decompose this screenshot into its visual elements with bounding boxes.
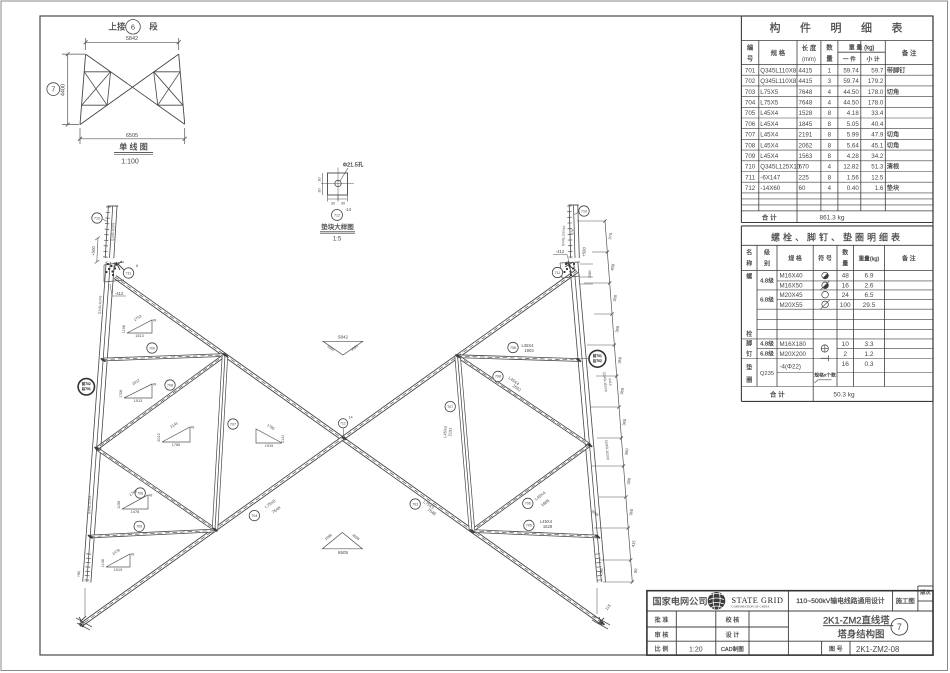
- svg-text:710: 710: [94, 216, 100, 220]
- svg-text:360: 360: [617, 356, 623, 364]
- svg-text:-14X60: -14X60: [760, 185, 781, 192]
- svg-text:710: 710: [745, 164, 756, 171]
- svg-text:706: 706: [745, 121, 756, 128]
- svg-text:备 注: 备 注: [902, 255, 916, 263]
- svg-text:设 计: 设 计: [726, 631, 740, 639]
- svg-text:59.74: 59.74: [843, 67, 859, 74]
- svg-text:178.0: 178.0: [868, 100, 884, 107]
- svg-text:后701: 后701: [82, 386, 91, 391]
- svg-text:2141: 2141: [281, 435, 285, 443]
- svg-text:塔身结构图: 塔身结构图: [838, 628, 885, 639]
- svg-text:6.9: 6.9: [864, 273, 873, 280]
- svg-text:Q345L110X8: Q345L110X8: [760, 67, 797, 74]
- svg-text:国家电网公司: 国家电网公司: [652, 596, 707, 607]
- svg-text:2.6: 2.6: [864, 283, 873, 290]
- svg-text:2062: 2062: [799, 142, 813, 149]
- svg-text:709: 709: [745, 153, 756, 160]
- svg-text:+500: +500: [90, 245, 96, 255]
- svg-text:30: 30: [341, 202, 345, 206]
- svg-text:704: 704: [251, 514, 257, 518]
- svg-text:带脚钉: 带脚钉: [887, 66, 906, 74]
- svg-text:2191: 2191: [799, 132, 813, 139]
- svg-text:1:5: 1:5: [333, 237, 342, 243]
- svg-text:4: 4: [828, 89, 832, 96]
- svg-text:12.82: 12.82: [843, 164, 859, 171]
- svg-text:360: 360: [612, 294, 618, 302]
- svg-text:2: 2: [843, 351, 847, 358]
- svg-text:48: 48: [842, 273, 850, 280]
- svg-text:钉: 钉: [746, 350, 752, 358]
- svg-text:比 例: 比 例: [655, 645, 669, 653]
- svg-text:49: 49: [153, 383, 157, 387]
- svg-text:50.3 kg: 50.3 kg: [833, 392, 855, 399]
- svg-text:数: 数: [826, 43, 833, 52]
- svg-text:7648: 7648: [271, 505, 282, 515]
- svg-text:712: 712: [334, 213, 340, 217]
- svg-text:1528: 1528: [799, 110, 813, 117]
- svg-text:5.05: 5.05: [847, 121, 860, 128]
- svg-text:Q345L110X8: Q345L110X8: [98, 295, 103, 314]
- svg-text:前702: 前702: [82, 381, 91, 386]
- svg-text:-500: -500: [599, 568, 604, 576]
- svg-text:701: 701: [745, 67, 756, 74]
- svg-text:33.4: 33.4: [871, 110, 884, 117]
- svg-text:1706: 1706: [119, 390, 123, 398]
- svg-text:M16X40: M16X40: [780, 273, 804, 280]
- svg-text:构件明细表: 构件明细表: [770, 21, 923, 35]
- svg-text:重量(kg): 重量(kg): [859, 255, 880, 263]
- svg-text:L75X5: L75X5: [760, 100, 778, 107]
- svg-text:2K1-ZM2直线塔: 2K1-ZM2直线塔: [823, 614, 890, 625]
- svg-text:审 核: 审 核: [655, 631, 669, 639]
- svg-text:施工图: 施工图: [896, 596, 915, 605]
- svg-text:7: 7: [51, 87, 55, 94]
- svg-text:390: 390: [626, 477, 632, 485]
- svg-text:60: 60: [799, 185, 806, 192]
- svg-text:1.56: 1.56: [847, 174, 860, 181]
- svg-text:45.1: 45.1: [871, 142, 884, 149]
- svg-text:CORPORATION OF CHINA: CORPORATION OF CHINA: [732, 605, 771, 609]
- svg-text:后702: 后702: [593, 358, 602, 363]
- svg-text:44.50: 44.50: [843, 100, 859, 107]
- svg-text:703: 703: [745, 89, 756, 96]
- svg-text:L45X4: L45X4: [760, 142, 778, 149]
- svg-text:47.9: 47.9: [871, 132, 884, 139]
- svg-text:702: 702: [745, 78, 756, 85]
- svg-text:长 度: 长 度: [802, 43, 817, 52]
- svg-text:螺: 螺: [746, 273, 752, 281]
- svg-text:Q345L125X10: Q345L125X10: [561, 225, 566, 246]
- svg-text:3: 3: [828, 78, 832, 85]
- svg-text:名: 名: [746, 249, 752, 257]
- svg-text:708: 708: [745, 142, 756, 149]
- svg-text:59.74: 59.74: [843, 78, 859, 85]
- svg-text:规 格: 规 格: [788, 255, 802, 263]
- svg-text:1:100: 1:100: [121, 159, 139, 166]
- svg-text:8: 8: [828, 142, 832, 149]
- svg-text:1106: 1106: [101, 559, 105, 567]
- svg-text:1998: 1998: [324, 533, 333, 541]
- svg-text:5.64: 5.64: [847, 142, 860, 149]
- svg-text:30: 30: [318, 188, 322, 192]
- svg-text:4: 4: [828, 164, 832, 171]
- svg-text:清根: 清根: [887, 163, 899, 171]
- svg-text:4400: 4400: [61, 84, 67, 96]
- svg-text:8: 8: [828, 174, 832, 181]
- svg-text:1513: 1513: [134, 399, 142, 403]
- svg-text:L45X4: L45X4: [760, 132, 778, 139]
- svg-text:Q345L110X8: Q345L110X8: [604, 440, 610, 460]
- svg-text:合 计: 合 计: [770, 390, 785, 399]
- svg-text:400: 400: [609, 263, 615, 271]
- svg-text:1919: 1919: [265, 444, 273, 448]
- svg-text:备 注: 备 注: [902, 48, 917, 57]
- svg-text:30: 30: [331, 202, 335, 206]
- svg-text:2062: 2062: [512, 383, 523, 393]
- svg-text:712: 712: [340, 422, 346, 426]
- svg-text:L75X5: L75X5: [760, 89, 778, 96]
- svg-text:8: 8: [828, 153, 832, 160]
- svg-text:4: 4: [828, 185, 832, 192]
- svg-text:59.7: 59.7: [871, 67, 884, 74]
- svg-text:5842: 5842: [338, 335, 349, 340]
- svg-text:29.5: 29.5: [863, 302, 876, 309]
- svg-text:上接: 上接: [108, 22, 126, 32]
- svg-text:100: 100: [840, 302, 851, 309]
- svg-text:单 线 图: 单 线 图: [119, 142, 147, 152]
- svg-text:4415: 4415: [608, 378, 613, 386]
- svg-text:708: 708: [495, 375, 501, 379]
- svg-text:切角: 切角: [887, 88, 899, 96]
- svg-text:L45X4: L45X4: [760, 121, 778, 128]
- svg-text:8: 8: [828, 121, 832, 128]
- svg-text:14: 14: [348, 416, 352, 420]
- svg-text:号: 号: [747, 55, 753, 63]
- svg-text:360: 360: [619, 387, 625, 395]
- svg-text:861.3 kg: 861.3 kg: [820, 214, 845, 221]
- svg-text:2012: 2012: [131, 378, 140, 386]
- svg-text:6505: 6505: [126, 133, 138, 139]
- svg-text:1513: 1513: [135, 334, 143, 338]
- svg-text:706: 706: [510, 346, 516, 350]
- svg-text:5842: 5842: [126, 36, 138, 42]
- svg-text:1478: 1478: [131, 510, 139, 514]
- svg-text:切角: 切角: [887, 131, 899, 139]
- svg-text:7648: 7648: [799, 100, 813, 107]
- svg-text:1196: 1196: [122, 325, 126, 333]
- svg-text:Φ21.5孔: Φ21.5孔: [343, 161, 364, 169]
- svg-text:M20X45: M20X45: [780, 292, 804, 299]
- svg-text:校 核: 校 核: [726, 616, 740, 624]
- svg-text:垫块大样图: 垫块大样图: [321, 222, 354, 231]
- svg-text:Q345L110X8: Q345L110X8: [760, 78, 797, 85]
- svg-text:Q235: Q235: [760, 371, 774, 377]
- svg-text:3580: 3580: [588, 270, 592, 278]
- svg-text:3.3: 3.3: [864, 341, 873, 348]
- svg-text:3998: 3998: [351, 533, 360, 541]
- svg-text:重 量 (kg): 重 量 (kg): [849, 43, 875, 51]
- svg-text:707: 707: [230, 422, 236, 426]
- svg-text:360: 360: [628, 508, 634, 516]
- svg-text:编: 编: [747, 43, 753, 52]
- svg-text:4.8级: 4.8级: [760, 340, 774, 348]
- svg-text:8: 8: [828, 132, 832, 139]
- svg-text:M16X50: M16X50: [780, 283, 804, 290]
- svg-text:脚: 脚: [746, 340, 752, 348]
- svg-text:L45X4: L45X4: [760, 110, 778, 117]
- svg-text:16: 16: [842, 283, 850, 290]
- svg-text:-412: -412: [556, 249, 565, 254]
- svg-text:+50: +50: [77, 571, 81, 578]
- svg-text:6.8级: 6.8级: [760, 350, 774, 358]
- svg-text:115: 115: [604, 602, 612, 611]
- svg-text:规格x个数: 规格x个数: [814, 371, 836, 378]
- svg-text:M20X55: M20X55: [780, 302, 804, 309]
- svg-text:360: 360: [614, 325, 620, 333]
- svg-text:1845: 1845: [799, 121, 813, 128]
- svg-text:710: 710: [581, 209, 587, 213]
- svg-text:称: 称: [746, 260, 752, 268]
- svg-text:符 号: 符 号: [818, 255, 832, 263]
- svg-text:前701: 前701: [593, 353, 602, 358]
- svg-text:切角: 切角: [887, 141, 899, 149]
- svg-text:30: 30: [318, 177, 322, 181]
- svg-text:16: 16: [842, 361, 850, 368]
- svg-text:量: 量: [826, 55, 833, 63]
- svg-text:6: 6: [136, 264, 138, 268]
- svg-text:量: 量: [842, 261, 848, 268]
- svg-text:4.8级: 4.8级: [760, 277, 774, 285]
- svg-text:670: 670: [570, 229, 574, 235]
- svg-text:370: 370: [607, 232, 613, 240]
- svg-text:段: 段: [149, 22, 158, 32]
- svg-text:一 件: 一 件: [843, 55, 856, 63]
- svg-text:670: 670: [799, 164, 810, 171]
- svg-text:M16X180: M16X180: [780, 341, 807, 348]
- svg-text:705: 705: [136, 525, 142, 529]
- svg-text:1563: 1563: [799, 153, 813, 160]
- svg-text:2141: 2141: [169, 421, 178, 429]
- svg-text:4.18: 4.18: [847, 110, 860, 117]
- svg-text:小 计: 小 计: [866, 55, 879, 63]
- svg-text:7648: 7648: [799, 89, 813, 96]
- svg-text:4415: 4415: [799, 78, 813, 85]
- svg-text:-14: -14: [345, 207, 352, 212]
- svg-text:704: 704: [745, 100, 756, 107]
- svg-text:2191: 2191: [447, 427, 453, 437]
- svg-text:-6X147: -6X147: [760, 174, 781, 181]
- svg-text:705: 705: [745, 110, 756, 117]
- svg-text:1785: 1785: [266, 423, 275, 431]
- svg-text:2K1-ZM2-08: 2K1-ZM2-08: [856, 645, 899, 654]
- svg-text:Q345L125X10: Q345L125X10: [760, 164, 800, 171]
- svg-text:705: 705: [526, 524, 532, 528]
- svg-text:7: 7: [897, 622, 902, 632]
- svg-text:360: 360: [623, 447, 629, 455]
- svg-text:4415: 4415: [799, 67, 813, 74]
- svg-text:批 准: 批 准: [655, 616, 669, 624]
- svg-text:别: 别: [764, 260, 770, 268]
- svg-text:图 号: 图 号: [829, 646, 843, 653]
- svg-text:1478: 1478: [112, 548, 121, 556]
- svg-text:4: 4: [828, 100, 832, 107]
- svg-text:707: 707: [447, 405, 453, 409]
- svg-text:711: 711: [555, 271, 561, 275]
- svg-text:706: 706: [525, 502, 531, 506]
- svg-text:360: 360: [621, 418, 627, 426]
- svg-text:(mm): (mm): [802, 57, 816, 63]
- svg-text:40.4: 40.4: [871, 121, 884, 128]
- svg-text:1805: 1805: [540, 498, 551, 508]
- svg-text:级: 级: [764, 249, 770, 257]
- svg-text:1528: 1528: [543, 524, 553, 529]
- svg-text:703: 703: [412, 502, 418, 506]
- svg-text:5.99: 5.99: [847, 132, 860, 139]
- svg-text:24: 24: [842, 292, 850, 299]
- svg-text:规 格: 规 格: [771, 48, 786, 57]
- svg-text:1:20: 1:20: [689, 647, 703, 654]
- svg-text:7648: 7648: [427, 507, 438, 517]
- svg-text:6: 6: [131, 23, 135, 32]
- svg-text:8: 8: [828, 110, 832, 117]
- svg-text:1785: 1785: [172, 443, 180, 447]
- svg-text:1196: 1196: [117, 501, 121, 509]
- svg-text:178.0: 178.0: [868, 89, 884, 96]
- svg-text:1: 1: [828, 67, 832, 74]
- svg-text:1919: 1919: [114, 568, 122, 572]
- svg-text:圈: 圈: [746, 377, 752, 384]
- svg-text:CAD制图: CAD制图: [721, 645, 744, 653]
- svg-text:90: 90: [633, 567, 639, 573]
- svg-text:M20X200: M20X200: [780, 351, 807, 358]
- svg-text:708: 708: [167, 383, 173, 387]
- svg-text:110~500kV输电线路通用设计: 110~500kV输电线路通用设计: [796, 596, 885, 605]
- svg-text:6505: 6505: [338, 550, 349, 555]
- svg-text:版次: 版次: [920, 588, 930, 596]
- svg-text:10: 10: [842, 341, 850, 348]
- svg-text:712: 712: [745, 185, 756, 192]
- svg-text:225: 225: [799, 174, 810, 181]
- svg-text:707: 707: [745, 132, 756, 139]
- svg-text:3580: 3580: [326, 344, 335, 352]
- svg-text:-412: -412: [115, 291, 124, 296]
- svg-text:螺栓、脚钉、垫圈明细表: 螺栓、脚钉、垫圈明细表: [771, 232, 903, 243]
- svg-text:49: 49: [191, 426, 195, 430]
- svg-text:栓: 栓: [746, 330, 752, 338]
- svg-text:0.3: 0.3: [864, 361, 873, 368]
- svg-text:49: 49: [149, 494, 153, 498]
- svg-text:1.2: 1.2: [864, 351, 873, 358]
- svg-text:1903: 1903: [524, 348, 534, 353]
- svg-text:12.5: 12.5: [871, 174, 884, 181]
- svg-text:44.50: 44.50: [843, 89, 859, 96]
- svg-text:49: 49: [131, 553, 135, 557]
- svg-text:2012: 2012: [157, 433, 161, 441]
- svg-text:4.28: 4.28: [847, 153, 860, 160]
- svg-text:-4(Φ22): -4(Φ22): [780, 364, 801, 371]
- svg-text:0.40: 0.40: [847, 185, 860, 192]
- svg-text:706: 706: [137, 491, 143, 495]
- svg-text:179.2: 179.2: [868, 78, 884, 85]
- svg-text:+500: +500: [581, 246, 587, 256]
- svg-text:L45X4: L45X4: [760, 153, 778, 160]
- svg-text:Q345L110X8: Q345L110X8: [602, 372, 608, 392]
- svg-text:6.8级: 6.8级: [760, 296, 774, 304]
- svg-text:1.6: 1.6: [875, 185, 884, 192]
- svg-text:1753: 1753: [133, 314, 142, 322]
- svg-text:709: 709: [149, 346, 155, 350]
- svg-text:51.3: 51.3: [871, 164, 884, 171]
- svg-text:数: 数: [842, 249, 848, 257]
- svg-text:垫块: 垫块: [887, 184, 899, 192]
- svg-text:711: 711: [126, 271, 132, 275]
- svg-text:711: 711: [745, 174, 755, 181]
- svg-text:34.2: 34.2: [871, 153, 884, 160]
- svg-text:垫: 垫: [746, 364, 752, 372]
- svg-text:合 计: 合 计: [762, 212, 777, 221]
- svg-text:6.5: 6.5: [864, 292, 873, 299]
- svg-text:415: 415: [630, 539, 636, 547]
- svg-text:49: 49: [153, 319, 157, 323]
